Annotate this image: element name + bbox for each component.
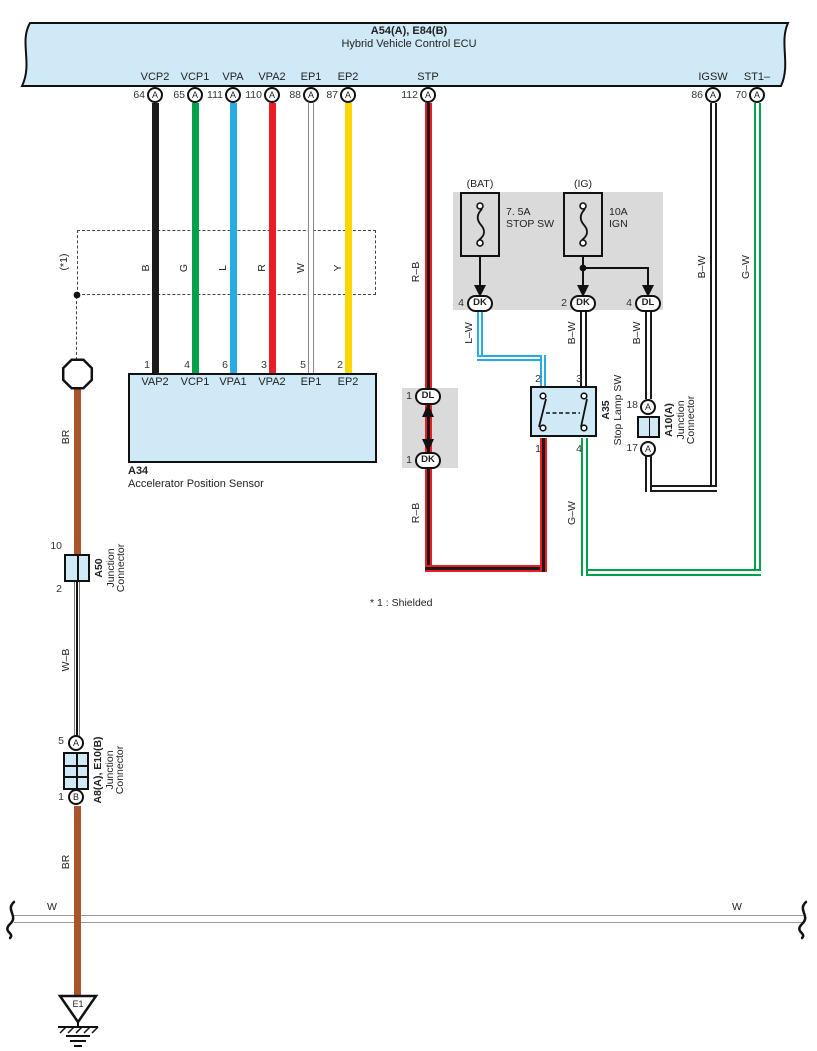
ecu-pin-number-65: 65 xyxy=(173,89,185,101)
a8-name-line2: Connector xyxy=(114,746,126,794)
a34-pin-label-vap2: VAP2 xyxy=(141,376,168,388)
ecu-banner-shape xyxy=(0,0,817,120)
fuse-ig-name: IGN xyxy=(609,218,628,230)
ecu-pin-terminal-vcp1: A xyxy=(187,87,203,103)
a8-pin-5: 5 xyxy=(58,735,64,747)
wire-r-red xyxy=(269,103,276,373)
a34-pin-number-6: 6 xyxy=(222,359,228,371)
ecu-pin-terminal-st1: A xyxy=(749,87,765,103)
wire-gw-bottom xyxy=(581,569,761,576)
a35-pin-4: 4 xyxy=(576,443,582,455)
wire-y-yellow xyxy=(345,103,352,373)
fuse-ig-rating: 10A xyxy=(609,206,628,218)
a34-name: Accelerator Position Sensor xyxy=(128,478,264,490)
a8-box-divider-h1 xyxy=(65,765,87,767)
fuse-bat-rating: 7. 5A xyxy=(506,206,531,218)
a35-pin-2: 2 xyxy=(535,373,541,385)
ecu-pin-label-vcp2: VCP2 xyxy=(141,71,170,83)
ecu-pin-label-st1: ST1– xyxy=(744,71,770,83)
a34-pin-label-ep2: EP2 xyxy=(338,376,359,388)
wire-label-rb-top: R–B xyxy=(410,262,422,282)
wiring-diagram: A54(A), E84(B) Hybrid Vehicle Control EC… xyxy=(0,0,817,1051)
shield-dashed-box xyxy=(77,230,376,295)
a8-box-divider-h2 xyxy=(65,776,87,778)
wire-label-l: L xyxy=(217,265,229,271)
wire-label-br-top: BR xyxy=(60,430,72,445)
a34-pin-label-vcp1: VCP1 xyxy=(181,376,210,388)
wire-label-w: W xyxy=(295,263,307,273)
ecu-pin-number-86: 86 xyxy=(691,89,703,101)
shield-footnote: * 1 : Shielded xyxy=(370,597,432,609)
wire-l-blue xyxy=(230,103,237,373)
wire-rb-a35-vertical xyxy=(540,438,547,572)
a8-pin-1: 1 xyxy=(58,791,64,803)
line-inline-connector xyxy=(427,406,429,450)
a10-pin-18: 18 xyxy=(626,399,638,411)
wire-br-bottom xyxy=(74,806,81,998)
a10-pin-17: 17 xyxy=(626,442,638,454)
fuse-ig-box xyxy=(563,192,603,257)
ecu-pin-label-ep1: EP1 xyxy=(301,71,322,83)
a50-box-divider xyxy=(77,556,79,580)
shield-drop-dashed-line xyxy=(76,296,77,360)
ground-hatch-tick xyxy=(68,1027,74,1033)
shield-label: (*1) xyxy=(58,254,70,271)
symbol-layer xyxy=(0,0,817,1051)
wire-label-bw-stop: B–W xyxy=(566,322,578,345)
a10-terminal-top: A xyxy=(640,399,656,415)
wire-label-y: Y xyxy=(332,264,344,271)
ecu-pin-terminal-ep1: A xyxy=(303,87,319,103)
ground-hatch-tick xyxy=(76,1027,82,1033)
a34-pin-label-vpa1: VPA1 xyxy=(219,376,246,388)
a35-id: A35 xyxy=(600,400,612,419)
ecu-pin-label-stp: STP xyxy=(417,71,438,83)
wire-label-bw-igsw: B–W xyxy=(696,256,708,279)
ecu-pin-number-88: 88 xyxy=(289,89,301,101)
wire-break-left-icon xyxy=(7,902,14,938)
wire-label-lw: L–W xyxy=(463,322,475,344)
a10-name-line2: Connector xyxy=(685,396,697,444)
ecu-pin-terminal-vpa2: A xyxy=(264,87,280,103)
a34-pin-label-vpa2: VPA2 xyxy=(258,376,285,388)
wire-w-white xyxy=(308,103,314,373)
wire-bw-igsw-vertical xyxy=(710,103,717,492)
ecu-pin-number-111: 111 xyxy=(207,89,223,101)
inline-top-terminal-dl: DL xyxy=(415,388,441,405)
ecu-pin-terminal-stp: A xyxy=(420,87,436,103)
wire-w-main-line2 xyxy=(14,922,803,923)
ecu-pin-terminal-igsw: A xyxy=(705,87,721,103)
wire-lw-horizontal xyxy=(477,355,546,361)
wire-bw-a10-vertical xyxy=(645,455,652,492)
wire-bw-dl-to-a10 xyxy=(645,311,652,399)
wire-label-gw-right: G–W xyxy=(740,255,752,279)
inline-bottom-pin: 1 xyxy=(406,454,412,466)
ground-hatch-tick xyxy=(60,1027,66,1033)
wire-gw-a35-vertical xyxy=(581,438,588,576)
line-ig-to-dk xyxy=(582,257,584,288)
ecu-name: Hybrid Vehicle Control ECU xyxy=(341,38,476,50)
terminal-dl-ig: DL xyxy=(635,295,661,312)
ground-id: E1 xyxy=(72,999,83,1009)
ecu-pin-label-vcp1: VCP1 xyxy=(181,71,210,83)
wire-label-rb-bottom: R–B xyxy=(410,503,422,523)
wire-br-top xyxy=(74,388,81,554)
ground-hatch-tick xyxy=(92,1027,98,1033)
a34-pin-label-ep1: EP1 xyxy=(301,376,322,388)
a10-terminal-bottom: A xyxy=(640,441,656,457)
ecu-pin-number-112: 112 xyxy=(401,89,418,101)
inline-top-pin: 1 xyxy=(406,390,412,402)
wire-rb-bottom xyxy=(425,565,547,572)
terminal-pin-2-ig: 2 xyxy=(561,297,567,309)
terminal-pin-4-ig: 4 xyxy=(626,297,632,309)
a50-name-line2: Connector xyxy=(115,544,127,592)
a34-pin-number-4: 4 xyxy=(184,359,190,371)
fuse-ig-source: (IG) xyxy=(574,178,592,190)
a8-box xyxy=(63,752,89,790)
wire-label-w-left: W xyxy=(47,901,57,913)
wire-wb xyxy=(74,582,80,745)
wire-gw-st1-vertical xyxy=(754,103,761,576)
line-ig-branch-vertical xyxy=(647,267,649,289)
a10-box-divider xyxy=(649,418,651,436)
line-bat-to-dk xyxy=(479,257,481,288)
ecu-pin-number-64: 64 xyxy=(133,89,145,101)
terminal-dk-ig: DK xyxy=(570,295,596,312)
a10-id: A10(A) xyxy=(663,403,675,437)
a50-id: A50 xyxy=(93,558,105,577)
ecu-pin-label-vpa2: VPA2 xyxy=(258,71,285,83)
wire-w-main-line1 xyxy=(14,915,803,916)
a50-pin-10: 10 xyxy=(50,540,62,552)
a8-terminal-a: A xyxy=(68,735,84,751)
a8-terminal-b: B xyxy=(68,789,84,805)
ground-hatch-tick xyxy=(84,1027,90,1033)
fuse-bat-box xyxy=(460,192,500,257)
wire-break-right-icon xyxy=(799,902,806,938)
wire-g-green xyxy=(192,103,199,373)
wire-label-r: R xyxy=(256,264,268,272)
a34-pin-number-3: 3 xyxy=(261,359,267,371)
inline-bottom-terminal-dk: DK xyxy=(415,452,441,469)
a50-pin-2: 2 xyxy=(56,583,62,595)
a8-box-divider-v xyxy=(76,754,78,788)
line-ig-branch-horizontal xyxy=(582,267,648,269)
wire-rb-stp-vertical xyxy=(425,103,432,572)
ecu-title: A54(A), E84(B) xyxy=(371,25,447,37)
wire-label-wb: W–B xyxy=(60,649,72,672)
a35-pin-3: 3 xyxy=(576,373,582,385)
ecu-pin-number-70: 70 xyxy=(735,89,747,101)
wire-lw-vertical1 xyxy=(477,311,483,357)
wire-bw-bottom xyxy=(645,485,717,492)
fuse-bat-source: (BAT) xyxy=(467,178,494,190)
wire-label-bw-dl: B–W xyxy=(631,322,643,345)
ecu-pin-label-vpa: VPA xyxy=(222,71,243,83)
a34-pin-number-2: 2 xyxy=(337,359,343,371)
terminal-pin-4-bat: 4 xyxy=(458,297,464,309)
wire-br-crossing xyxy=(74,910,81,928)
wire-label-gw-bottom: G–W xyxy=(566,501,578,525)
wire-label-w-right: W xyxy=(732,901,742,913)
a35-box xyxy=(530,386,597,437)
wire-label-b: B xyxy=(140,264,152,271)
ecu-pin-terminal-vpa: A xyxy=(225,87,241,103)
ecu-pin-label-ep2: EP2 xyxy=(338,71,359,83)
ecu-pin-number-87: 87 xyxy=(326,89,338,101)
a34-pin-number-1: 1 xyxy=(144,359,150,371)
ecu-pin-terminal-vcp2: A xyxy=(147,87,163,103)
wire-label-br-bottom: BR xyxy=(60,855,72,870)
a34-pin-number-5: 5 xyxy=(300,359,306,371)
a34-id: A34 xyxy=(128,465,148,477)
fuse-bat-name: STOP SW xyxy=(506,218,554,230)
ecu-pin-label-igsw: IGSW xyxy=(698,71,727,83)
a10-box xyxy=(637,416,660,438)
a35-pin-1: 1 xyxy=(535,443,541,455)
terminal-dk-bat: DK xyxy=(467,295,493,312)
wire-b-black xyxy=(152,103,159,373)
wire-label-g: G xyxy=(178,264,190,272)
a35-name: Stop Lamp SW xyxy=(612,375,624,446)
ecu-pin-number-110: 110 xyxy=(245,89,262,101)
a50-box xyxy=(64,554,90,582)
shield-octagon-icon xyxy=(63,360,92,389)
ecu-pin-terminal-ep2: A xyxy=(340,87,356,103)
a8-id: A8(A), E10(B) xyxy=(92,736,104,803)
